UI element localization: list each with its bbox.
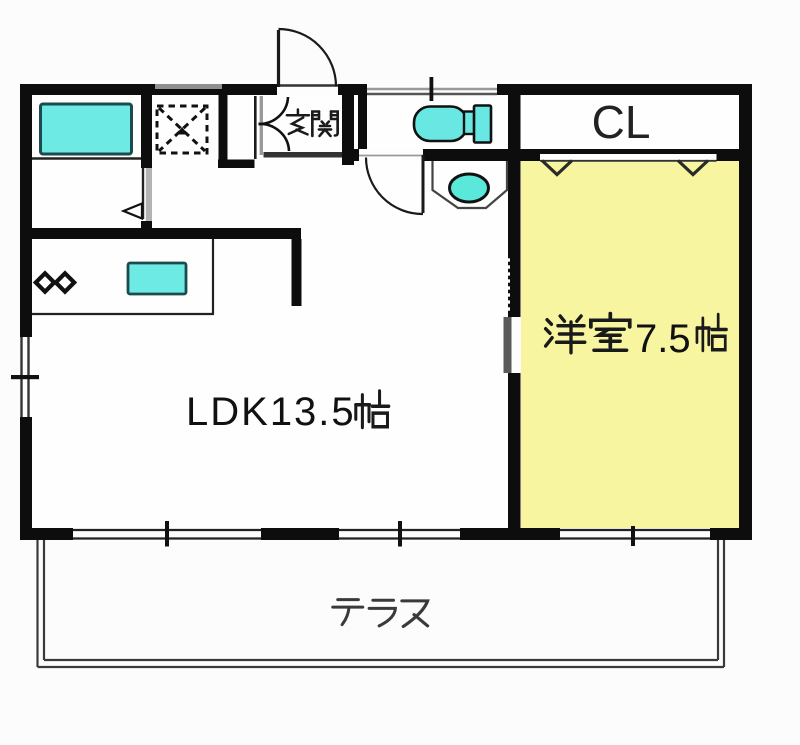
svg-text:CL: CL: [592, 96, 651, 148]
svg-text:7.5: 7.5: [635, 317, 691, 361]
svg-text:LDK13.5: LDK13.5: [186, 390, 356, 434]
